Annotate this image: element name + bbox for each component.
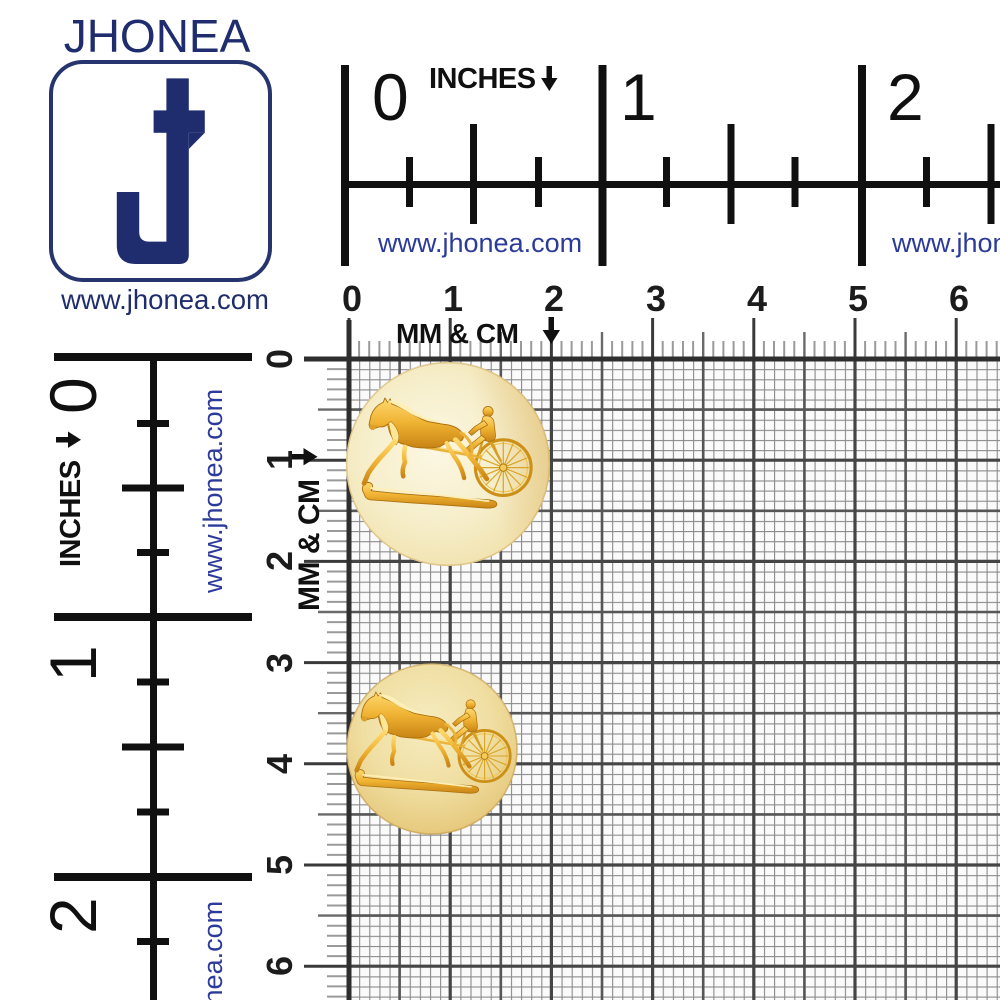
svg-text:5: 5 xyxy=(259,855,300,875)
svg-text:www.jhonea.com: www.jhonea.com xyxy=(377,228,582,258)
svg-text:0: 0 xyxy=(36,377,110,414)
svg-text:INCHES: INCHES xyxy=(429,63,536,95)
svg-text:MM & CM: MM & CM xyxy=(396,318,518,349)
svg-text:2: 2 xyxy=(259,551,300,571)
svg-text:4: 4 xyxy=(747,278,767,319)
svg-text:www.jhonea.com: www.jhonea.com xyxy=(198,389,228,594)
svg-text:1: 1 xyxy=(443,278,463,319)
svg-text:1: 1 xyxy=(259,450,300,470)
svg-text:2: 2 xyxy=(544,278,564,319)
svg-text:www.jhonea.com: www.jhonea.com xyxy=(891,228,1000,258)
svg-text:1: 1 xyxy=(36,645,110,682)
svg-text:2: 2 xyxy=(887,60,924,134)
svg-text:0: 0 xyxy=(342,278,362,319)
svg-text:0: 0 xyxy=(259,349,300,369)
svg-text:3: 3 xyxy=(259,653,300,673)
svg-text:3: 3 xyxy=(646,278,666,319)
svg-text:6: 6 xyxy=(949,278,969,319)
svg-text:INCHES: INCHES xyxy=(55,460,87,567)
svg-text:www.jhonea.com: www.jhonea.com xyxy=(198,901,228,1000)
svg-text:2: 2 xyxy=(36,897,110,934)
svg-text:MM & CM: MM & CM xyxy=(293,480,326,611)
svg-text:5: 5 xyxy=(848,278,868,319)
svg-text:6: 6 xyxy=(259,956,300,976)
svg-text:1: 1 xyxy=(620,60,657,134)
svg-text:4: 4 xyxy=(259,754,300,774)
svg-text:www.jhonea.com: www.jhonea.com xyxy=(60,284,269,315)
svg-text:JHONEA: JHONEA xyxy=(64,10,251,62)
svg-text:0: 0 xyxy=(372,60,409,134)
